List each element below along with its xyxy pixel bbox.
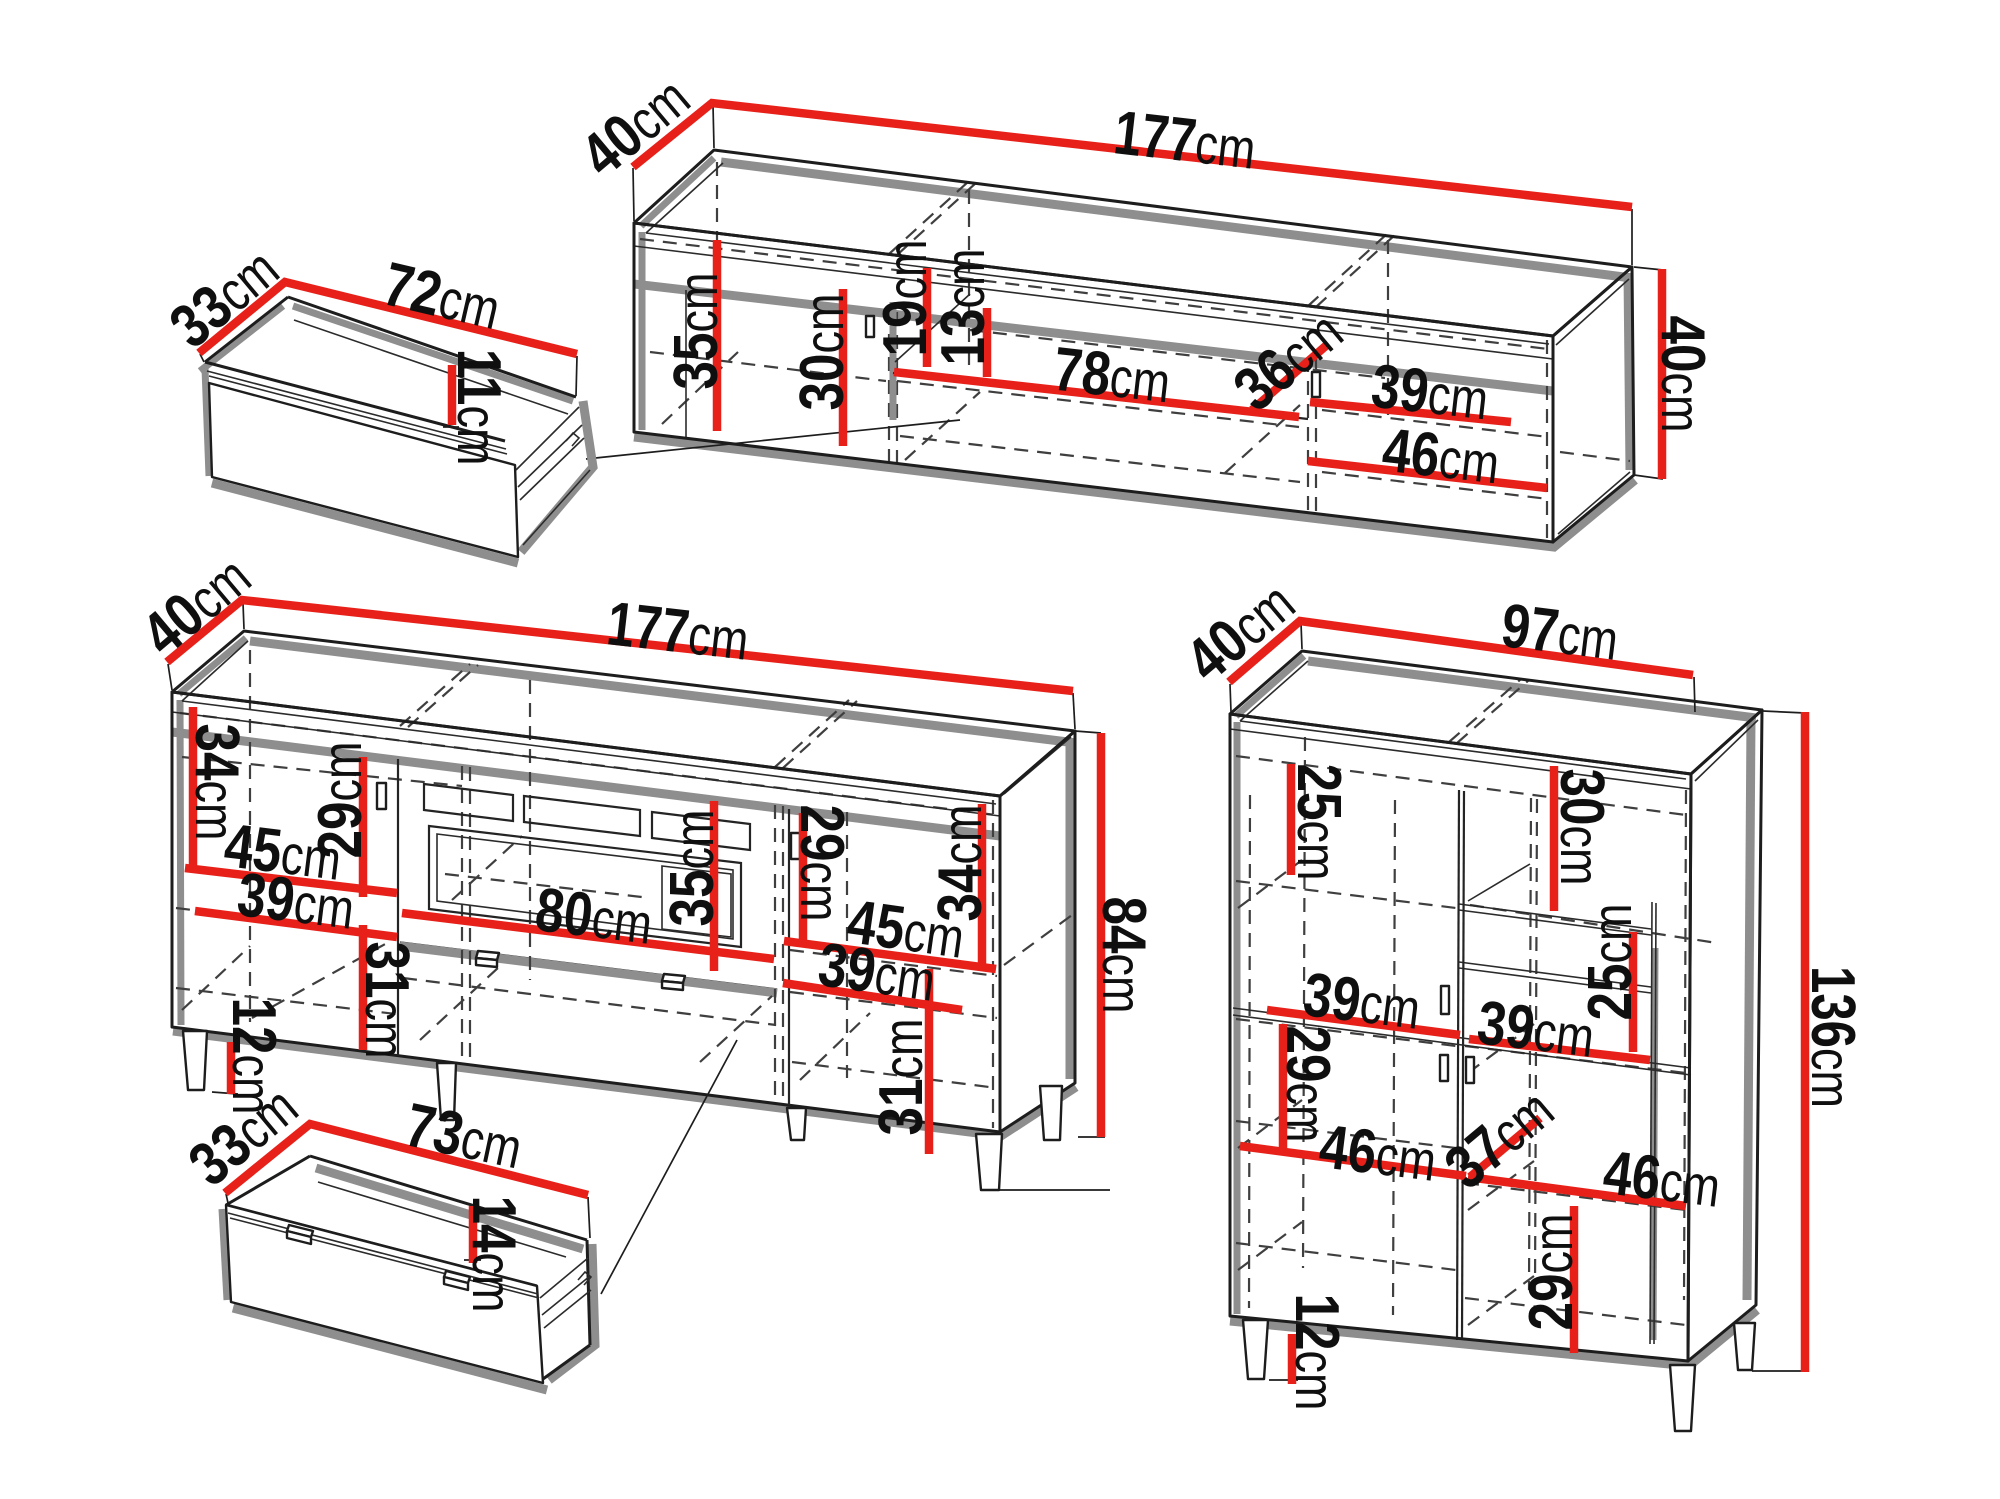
svg-text:25cm: 25cm bbox=[1284, 764, 1353, 881]
svg-text:35cm: 35cm bbox=[658, 810, 727, 927]
svg-text:14cm: 14cm bbox=[459, 1196, 528, 1313]
svg-text:31cm: 31cm bbox=[867, 1019, 936, 1136]
svg-text:136cm: 136cm bbox=[1798, 966, 1867, 1108]
svg-text:35cm: 35cm bbox=[662, 273, 731, 390]
svg-text:84cm: 84cm bbox=[1089, 897, 1158, 1014]
svg-text:29cm: 29cm bbox=[306, 742, 375, 859]
svg-text:13cm: 13cm bbox=[929, 249, 998, 366]
svg-text:29cm: 29cm bbox=[787, 805, 856, 922]
svg-text:31cm: 31cm bbox=[352, 942, 421, 1059]
svg-text:12cm: 12cm bbox=[1282, 1294, 1351, 1411]
svg-text:30cm: 30cm bbox=[1547, 769, 1616, 886]
svg-text:11cm: 11cm bbox=[444, 349, 513, 466]
svg-text:30cm: 30cm bbox=[788, 294, 857, 411]
svg-text:25cm: 25cm bbox=[1576, 904, 1645, 1021]
svg-text:40cm: 40cm bbox=[1648, 316, 1717, 433]
svg-text:29cm: 29cm bbox=[1517, 1214, 1586, 1331]
